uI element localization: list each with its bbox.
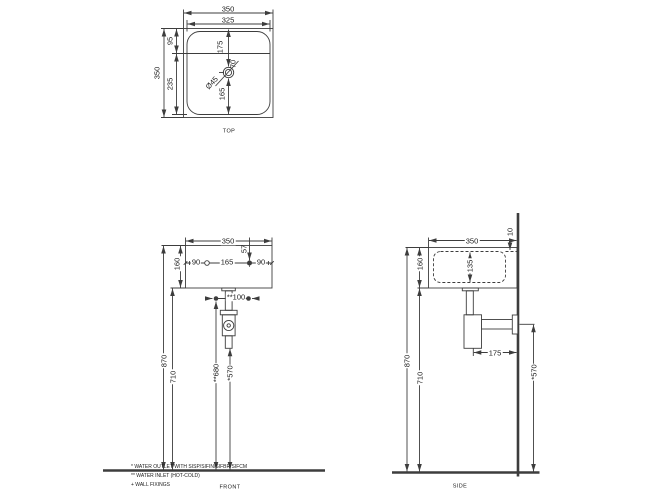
top-view-linework	[161, 10, 273, 118]
wall-flange-side	[512, 315, 518, 334]
dim-front-rim-height: 870	[160, 354, 168, 369]
dim-fixing-spacing: 165	[220, 258, 235, 266]
side-view-linework	[392, 213, 540, 477]
dim-side-underside-height: 710	[416, 371, 424, 386]
dim-top-depth-total: 350	[153, 67, 161, 80]
dim-left-to-fixing: 90	[191, 258, 201, 266]
dim-top-width-outer: 350	[222, 5, 235, 13]
fixing-hole-left	[205, 261, 210, 266]
dim-side-outlet-height: *570	[530, 363, 538, 380]
dim-front-height: 160	[173, 257, 181, 272]
note-water-outlet: * WATER OUTLET WITH SISP/SIFIN/SIFBR/SIF…	[131, 465, 247, 470]
trap-body-front	[222, 315, 235, 336]
dim-fixing-to-right: 90	[256, 258, 266, 266]
dim-front-width: 350	[221, 237, 236, 245]
tailpipe-side	[466, 291, 473, 315]
note-water-inlet: ** WATER INLET (HOT-COLD)	[131, 474, 200, 479]
dim-top-to-fixing: 57	[240, 245, 248, 253]
note-wall-fixings: + WALL FIXINGS	[131, 483, 170, 488]
view-label-front: FRONT	[220, 485, 241, 491]
trap-body-side	[464, 315, 482, 349]
dim-drain-outer: 70	[229, 60, 237, 68]
technical-drawing-basin: 350 325 95 350 235 175 70 Ø45 165 TOP 35…	[0, 0, 667, 500]
dim-front-outlet-height: *570	[226, 364, 234, 381]
dim-side-rim-height: 870	[403, 354, 411, 369]
front-basin-outline	[186, 246, 273, 289]
dim-back-rim: 10	[506, 228, 514, 236]
view-label-top: TOP	[223, 129, 235, 135]
dim-inlet-spacing: **100	[226, 293, 246, 301]
dim-side-depth: 350	[465, 237, 480, 245]
dim-trap-to-wall: 175	[488, 349, 503, 357]
dim-ledge-to-front: 235	[166, 78, 174, 91]
dim-front-underside-height: 710	[169, 370, 177, 385]
dim-inlet-height: **680	[212, 363, 220, 383]
dim-bowl-depth: 135	[466, 259, 474, 274]
view-label-side: SIDE	[453, 484, 467, 490]
dim-top-width-inner: 325	[222, 16, 235, 24]
dim-top-to-drain: 175	[216, 41, 224, 54]
front-view-linework	[103, 238, 325, 471]
dim-top-to-ledge: 95	[166, 37, 174, 45]
dim-drain-to-front: 165	[218, 88, 226, 101]
dim-side-height: 160	[416, 257, 424, 272]
drawing-linework	[0, 0, 667, 500]
outlet-pipe-side	[482, 320, 518, 330]
